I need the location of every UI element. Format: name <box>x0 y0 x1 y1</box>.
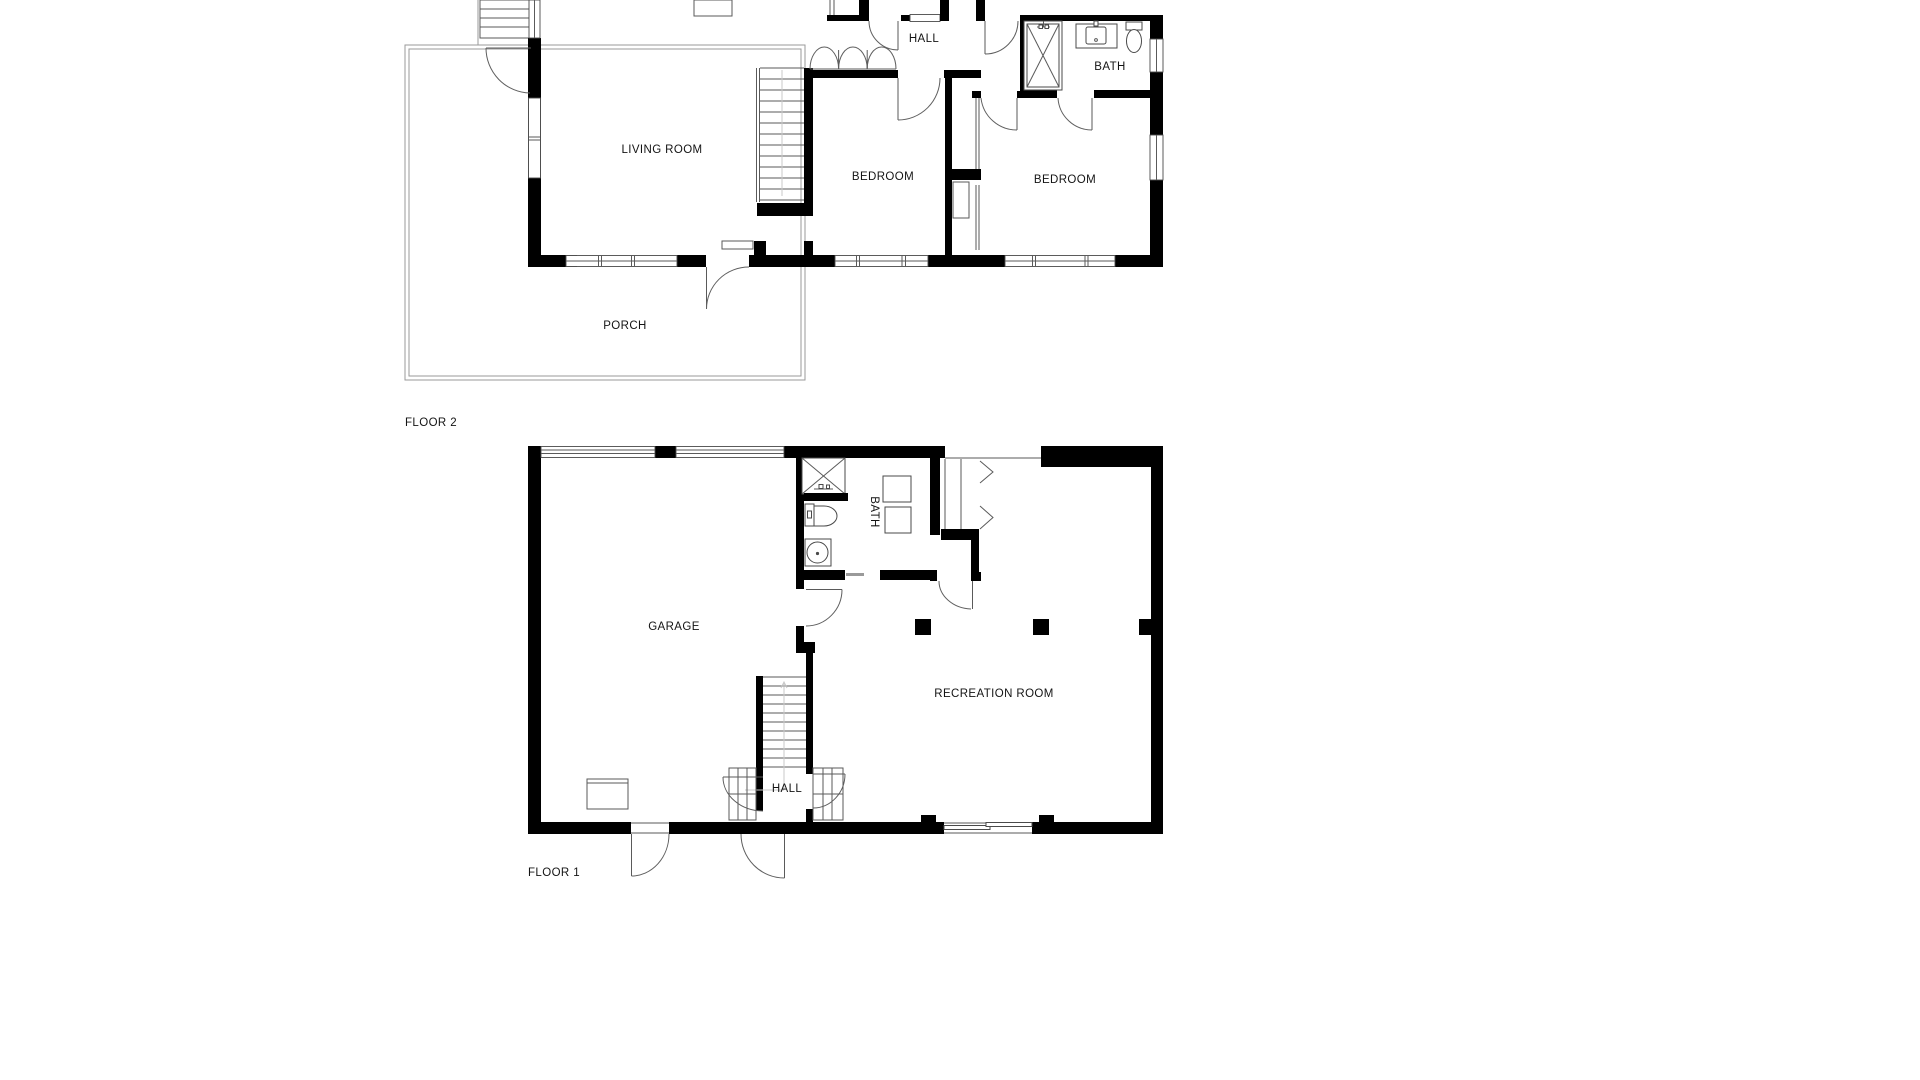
floor1-exterior-walls <box>528 446 1163 834</box>
room-label-porch: PORCH <box>603 320 647 332</box>
floor2-title: FLOOR 2 <box>405 417 457 429</box>
bedroom-a-wall-door <box>804 70 981 120</box>
room-label-living-room: LIVING ROOM <box>621 144 702 156</box>
floor2-plan: LIVING ROOM HALL BATH BEDROOM BEDROOM PO… <box>405 0 1163 429</box>
hall-north-door-left <box>869 21 898 50</box>
floor1-bath <box>796 458 940 580</box>
room-label-bedroom-b: BEDROOM <box>1034 174 1096 186</box>
washer-dryer-icons <box>883 476 911 533</box>
floor1-plan: GARAGE RECREATION ROOM HALL BATH FLOOR 1 <box>528 446 1163 879</box>
garage-window-left <box>541 447 655 458</box>
floor1-toilet-icon <box>805 504 837 526</box>
floor1-shower <box>802 458 848 501</box>
room-label-bedroom-a: BEDROOM <box>852 171 914 183</box>
hall-north-door-right <box>985 21 1018 54</box>
hall-closet <box>810 47 896 69</box>
water-heater-box <box>587 779 628 809</box>
room-label-hall-f2: HALL <box>909 33 940 45</box>
floor2-sink-icon <box>1076 21 1117 48</box>
room-label-hall-f1: HALL <box>772 783 803 795</box>
floor-plan-canvas: LIVING ROOM HALL BATH BEDROOM BEDROOM PO… <box>0 0 1920 1080</box>
west-entry-door <box>486 48 531 93</box>
exterior-stair <box>478 0 533 45</box>
garage-entry-door <box>631 823 669 876</box>
sliding-door <box>944 823 1032 834</box>
floor2-east-wall <box>1150 15 1163 267</box>
room-label-garage: GARAGE <box>648 621 700 633</box>
hall-shelves-left <box>729 768 756 820</box>
hall-right-door <box>813 774 845 808</box>
room-label-recreation-room: RECREATION ROOM <box>934 688 1054 700</box>
floor2-toilet-icon <box>1126 22 1142 53</box>
floor2-shower <box>1024 21 1062 90</box>
bedroom-closets <box>945 78 981 255</box>
floor-plan-page: LIVING ROOM HALL BATH BEDROOM BEDROOM PO… <box>0 0 1920 1080</box>
garage-window-right <box>676 447 784 458</box>
chimney-box <box>694 0 732 16</box>
hall-north-wall <box>827 0 1150 22</box>
floor2-south-window-living <box>566 256 677 267</box>
hall-shelves-right <box>813 768 843 820</box>
rec-room-piers <box>915 619 1151 822</box>
floor1-title: FLOOR 1 <box>528 867 580 879</box>
floor2-south-window-bedroom-a <box>835 256 928 267</box>
hall-front-door <box>741 834 785 878</box>
room-label-bath-f1: BATH <box>868 496 880 527</box>
bedroom-b-door <box>981 91 1020 130</box>
floor1-sink-icon <box>805 539 831 566</box>
floor2-south-window-bedroom-b <box>1005 256 1115 267</box>
floor2-west-wall <box>528 0 541 267</box>
porch-door <box>707 267 750 309</box>
room-label-bath-f2: BATH <box>1094 61 1125 73</box>
pocket-door <box>846 573 864 576</box>
floor2-stairs <box>722 68 813 255</box>
